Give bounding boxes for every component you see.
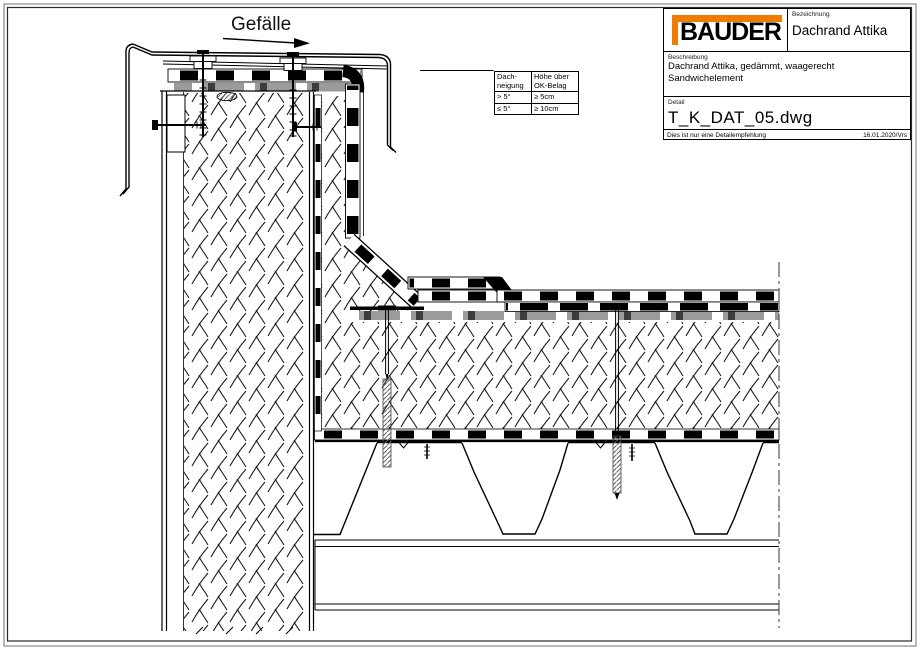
- bezeichnung-value: Dachrand Attika: [792, 23, 906, 38]
- bezeichnung-label: Bezeichnung: [792, 11, 906, 18]
- beschreibung-line-1: Dachrand Attika, gedämmt, waagerecht: [668, 61, 906, 73]
- bauder-logo: BAUDER: [664, 9, 788, 51]
- slope-arrow-head: [294, 38, 310, 48]
- detail-label: Detail: [668, 99, 906, 106]
- title-block: BAUDER Bezeichnung Dachrand Attika Besch…: [663, 8, 911, 140]
- deck-side-lap-screws: [424, 444, 635, 461]
- gefaelle-label: Gefälle: [231, 14, 291, 36]
- membrane-upstand: [347, 86, 359, 237]
- slope-height-table: Dach- neigung Höhe über OK-Belag > 5° ≥ …: [494, 71, 579, 115]
- flashing-strip-lower: [420, 292, 507, 301]
- cell-hoehe-1: ≥ 5cm: [532, 92, 579, 104]
- parapet-upstand-insulation: [322, 96, 346, 430]
- footer-date: 16.01.2020/Vrs: [863, 132, 907, 139]
- wall-outer-skin: [162, 91, 167, 632]
- detail-cell: Detail T_K_DAT_05.dwg: [664, 96, 910, 129]
- beschreibung-cell: Beschreibung Dachrand Attika, gedämmt, w…: [664, 51, 910, 96]
- wall-top-membrane: [170, 71, 361, 81]
- table-header-row: Dach- neigung Höhe über OK-Belag: [495, 72, 579, 92]
- logo-orange-left-bar: [672, 15, 678, 45]
- coping-outer-drip: [120, 44, 133, 196]
- bezeichnung-cell: Bezeichnung Dachrand Attika: [788, 9, 910, 51]
- joint-sealing-strip: [217, 92, 237, 100]
- col-header-dachneigung: Dach- neigung: [495, 72, 532, 92]
- logo-text: BAUDER: [680, 18, 781, 47]
- cell-neigung-2: ≤ 5°: [495, 103, 532, 115]
- slope-arrow: [223, 38, 310, 48]
- roof-field-insulation: [345, 322, 779, 430]
- title-block-row-1: BAUDER Bezeichnung Dachrand Attika: [664, 9, 910, 51]
- edge-beam: [315, 540, 779, 610]
- side-bolt-inner: [292, 123, 321, 132]
- detail-sheet: Gefälle Dach- neigung Höhe über OK-Belag…: [0, 0, 920, 650]
- beschreibung-label: Beschreibung: [668, 54, 906, 61]
- table-row: ≤ 5° ≥ 10cm: [495, 103, 579, 115]
- col-header-hoehe: Höhe über OK-Belag: [532, 72, 579, 92]
- wall-top-separation-layer: [174, 83, 352, 92]
- roof-separation-layer: [352, 311, 779, 320]
- deck-rib-1: [462, 443, 568, 534]
- wall-core-insulation: [184, 93, 305, 631]
- footer-note: Dies ist nur eine Detailempfehlung: [667, 132, 766, 139]
- flashing-strip-upper: [410, 279, 499, 288]
- outer-corner-profile: [167, 95, 185, 152]
- wall-inner-skin: [310, 92, 314, 631]
- table-row: > 5° ≥ 5cm: [495, 92, 579, 104]
- beschreibung-line-2: Sandwichelement: [668, 73, 906, 85]
- cell-hoehe-2: ≥ 10cm: [532, 103, 579, 115]
- field-membrane-bottom: [506, 303, 778, 311]
- detail-filename: T_K_DAT_05.dwg: [668, 108, 906, 128]
- insulation-hatch: [184, 93, 779, 631]
- deck-rib-2: [655, 443, 763, 534]
- cell-neigung-1: > 5°: [495, 92, 532, 104]
- title-block-footer: Dies ist nur eine Detailempfehlung 16.01…: [664, 129, 910, 141]
- field-membrane-top: [499, 292, 778, 301]
